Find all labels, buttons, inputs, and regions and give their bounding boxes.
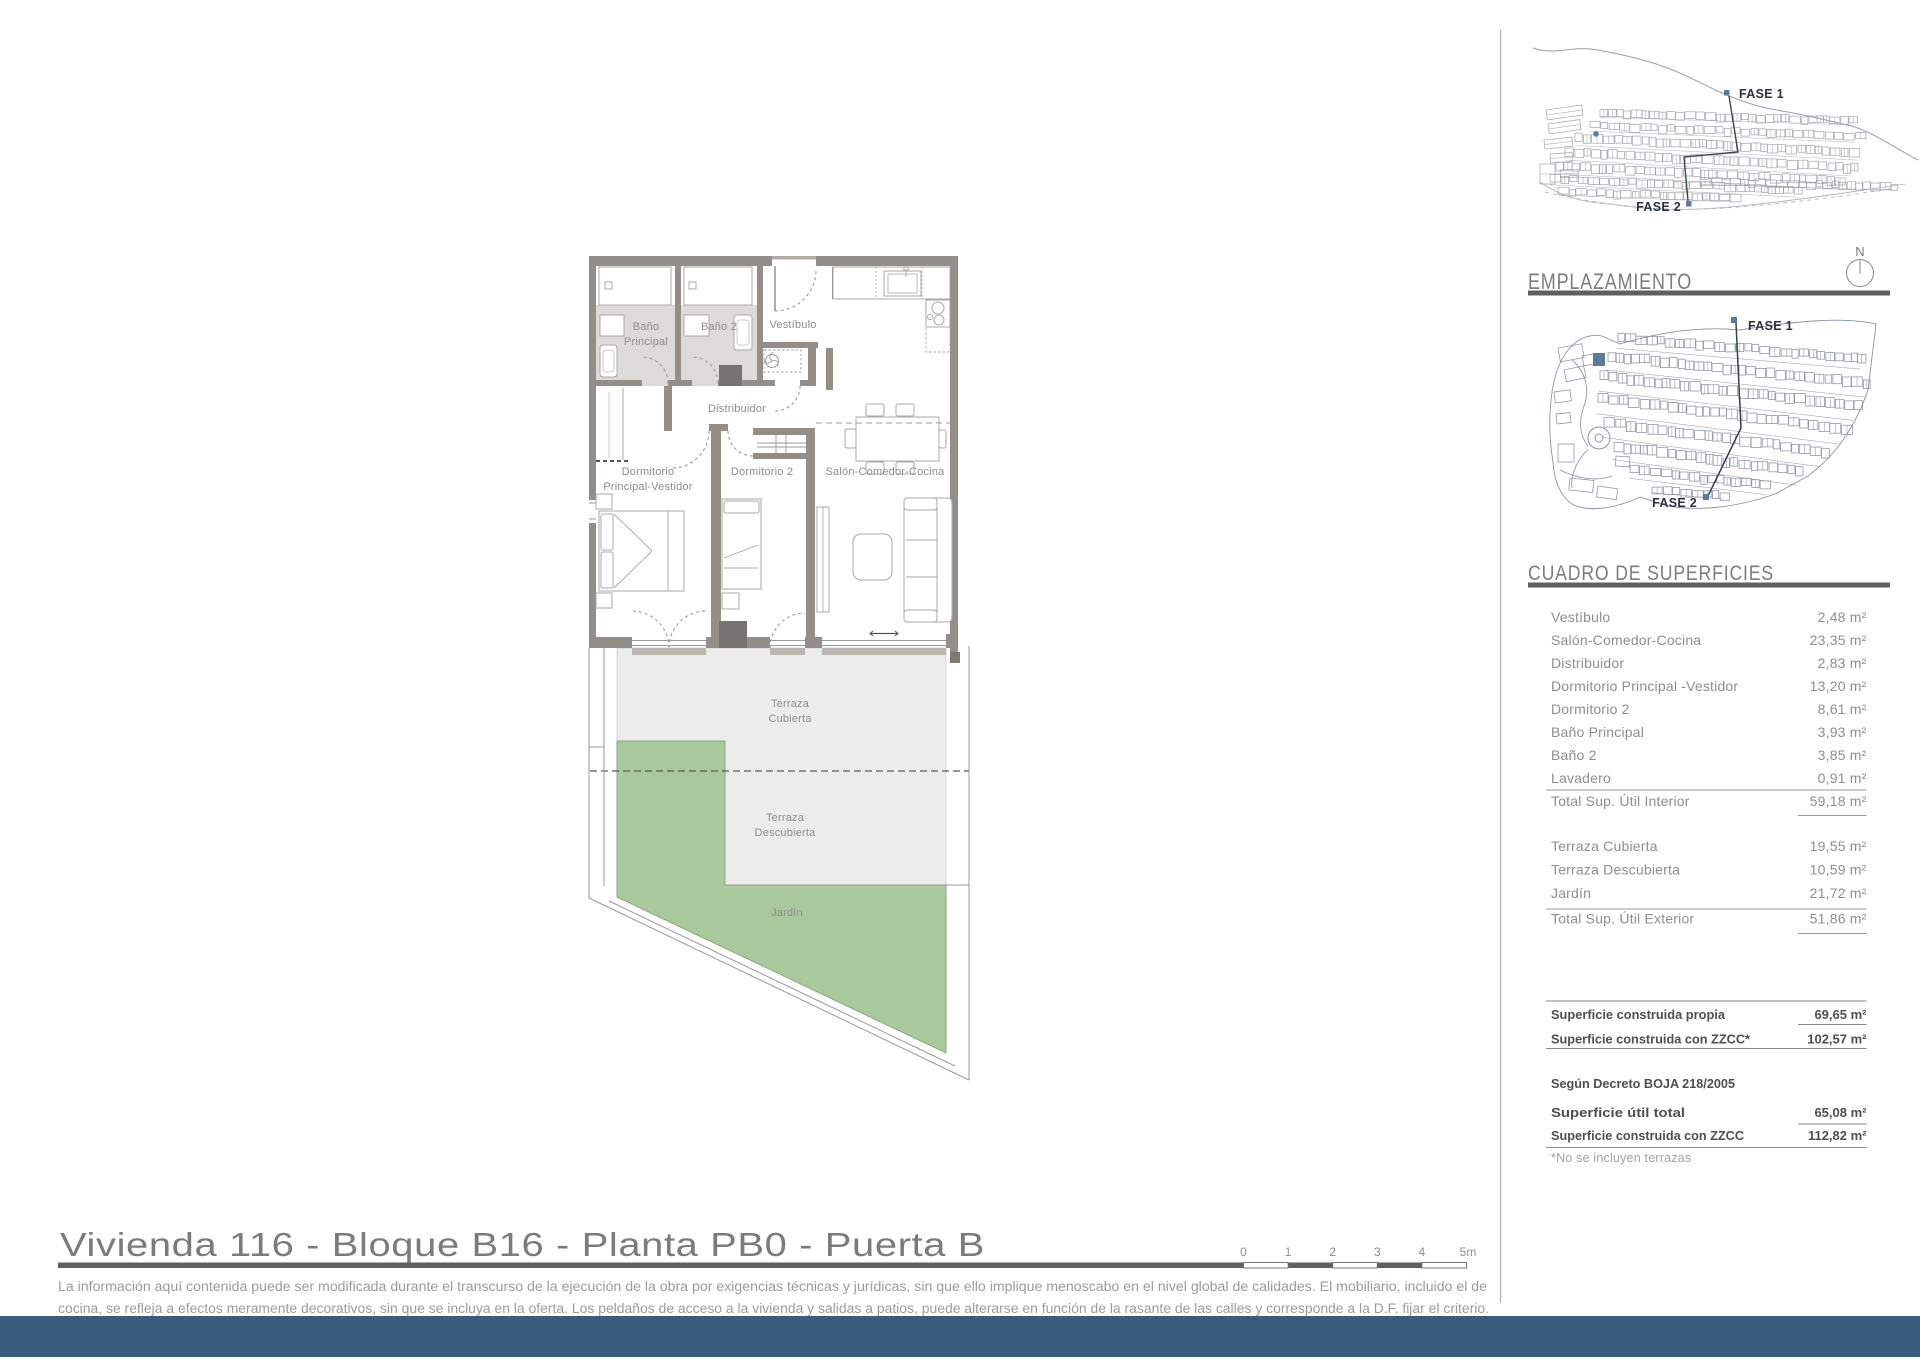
svg-text:5m: 5m [1460,1245,1477,1259]
svg-text:112,82 m²: 112,82 m² [1808,1128,1867,1143]
svg-text:Terraza Cubierta: Terraza Cubierta [1551,838,1658,854]
svg-text:Dormitorio 2: Dormitorio 2 [731,466,793,478]
svg-text:FASE 2: FASE 2 [1636,200,1681,214]
svg-text:2: 2 [1329,1245,1336,1259]
svg-text:Cubierta: Cubierta [768,713,812,725]
svg-text:*No se incluyen terrazas: *No se incluyen terrazas [1551,1151,1691,1165]
svg-text:Terraza: Terraza [771,698,810,710]
svg-text:3,93 m²: 3,93 m² [1818,724,1867,740]
svg-text:N: N [1855,244,1864,259]
svg-text:Terraza Descubierta: Terraza Descubierta [1551,862,1680,878]
svg-text:51,86 m²: 51,86 m² [1810,911,1867,927]
svg-text:10,59 m²: 10,59 m² [1810,862,1867,878]
svg-text:Principal-Vestidor: Principal-Vestidor [603,481,692,493]
svg-text:Total Sup. Útil Exterior: Total Sup. Útil Exterior [1551,911,1694,927]
svg-text:Superficie construida con ZZCC: Superficie construida con ZZCC [1551,1128,1745,1143]
svg-text:Dormitorio: Dormitorio [622,466,675,478]
svg-text:69,65 m²: 69,65 m² [1814,1007,1867,1022]
svg-text:3: 3 [1374,1245,1381,1259]
svg-text:8,61 m²: 8,61 m² [1818,701,1867,717]
svg-text:Superficie útil total: Superficie útil total [1551,1105,1685,1120]
svg-text:Distribuidor: Distribuidor [1551,655,1624,671]
svg-text:Vivienda 116 - Bloque B16 - Pl: Vivienda 116 - Bloque B16 - Planta PB0 -… [60,1226,985,1263]
svg-text:102,57 m²: 102,57 m² [1807,1032,1867,1047]
svg-text:Baño 2: Baño 2 [701,321,737,333]
svg-text:23,35 m²: 23,35 m² [1810,632,1867,648]
svg-text:CUADRO DE SUPERFICIES: CUADRO DE SUPERFICIES [1528,562,1774,585]
svg-text:Según Decreto BOJA 218/2005: Según Decreto BOJA 218/2005 [1551,1076,1735,1091]
svg-text:Principal: Principal [624,336,668,348]
svg-text:Lavadero: Lavadero [1551,770,1611,786]
svg-text:EMPLAZAMIENTO: EMPLAZAMIENTO [1528,269,1692,294]
svg-text:Vestíbulo: Vestíbulo [1551,609,1610,625]
svg-text:Distribuidor: Distribuidor [708,403,766,415]
svg-text:0: 0 [1240,1245,1247,1259]
svg-text:Terraza: Terraza [766,812,805,824]
svg-text:0,91 m²: 0,91 m² [1818,770,1867,786]
svg-text:La información aquí contenida: La información aquí contenida puede ser … [58,1279,1487,1295]
svg-text:21,72 m²: 21,72 m² [1810,885,1867,901]
svg-text:Jardín: Jardín [1551,885,1591,901]
svg-text:13,20 m²: 13,20 m² [1810,678,1867,694]
svg-text:FASE 2: FASE 2 [1652,496,1697,510]
svg-text:cocina, se refleja a efectos m: cocina, se refleja a efectos meramente d… [58,1301,1489,1317]
svg-text:FASE 1: FASE 1 [1748,319,1793,333]
svg-text:Dormitorio 2: Dormitorio 2 [1551,701,1630,717]
svg-text:Descubierta: Descubierta [755,827,817,839]
svg-text:19,55 m²: 19,55 m² [1810,838,1867,854]
svg-text:Total Sup. Útil Interior: Total Sup. Útil Interior [1551,793,1690,809]
svg-text:Baño: Baño [633,321,660,333]
svg-text:Salón-Comedor-Cocina: Salón-Comedor-Cocina [826,466,946,478]
svg-text:Superficie construida con ZZCC: Superficie construida con ZZCC* [1551,1032,1751,1047]
svg-text:Vestíbulo: Vestíbulo [769,319,816,331]
svg-text:Baño Principal: Baño Principal [1551,724,1644,740]
svg-text:1: 1 [1285,1245,1292,1259]
svg-text:2,83 m²: 2,83 m² [1818,655,1867,671]
svg-text:65,08 m²: 65,08 m² [1814,1105,1867,1120]
svg-text:59,18 m²: 59,18 m² [1810,793,1867,809]
svg-text:Superficie construida propia: Superficie construida propia [1551,1007,1726,1022]
svg-text:2,48 m²: 2,48 m² [1818,609,1867,625]
svg-text:FASE 1: FASE 1 [1739,87,1784,101]
svg-text:Dormitorio Principal -Vestidor: Dormitorio Principal -Vestidor [1551,678,1738,694]
svg-text:4: 4 [1419,1245,1426,1259]
svg-text:Baño 2: Baño 2 [1551,747,1597,763]
svg-text:Jardín: Jardín [771,907,803,919]
svg-text:3,85 m²: 3,85 m² [1818,747,1867,763]
svg-text:Salón-Comedor-Cocina: Salón-Comedor-Cocina [1551,632,1701,648]
